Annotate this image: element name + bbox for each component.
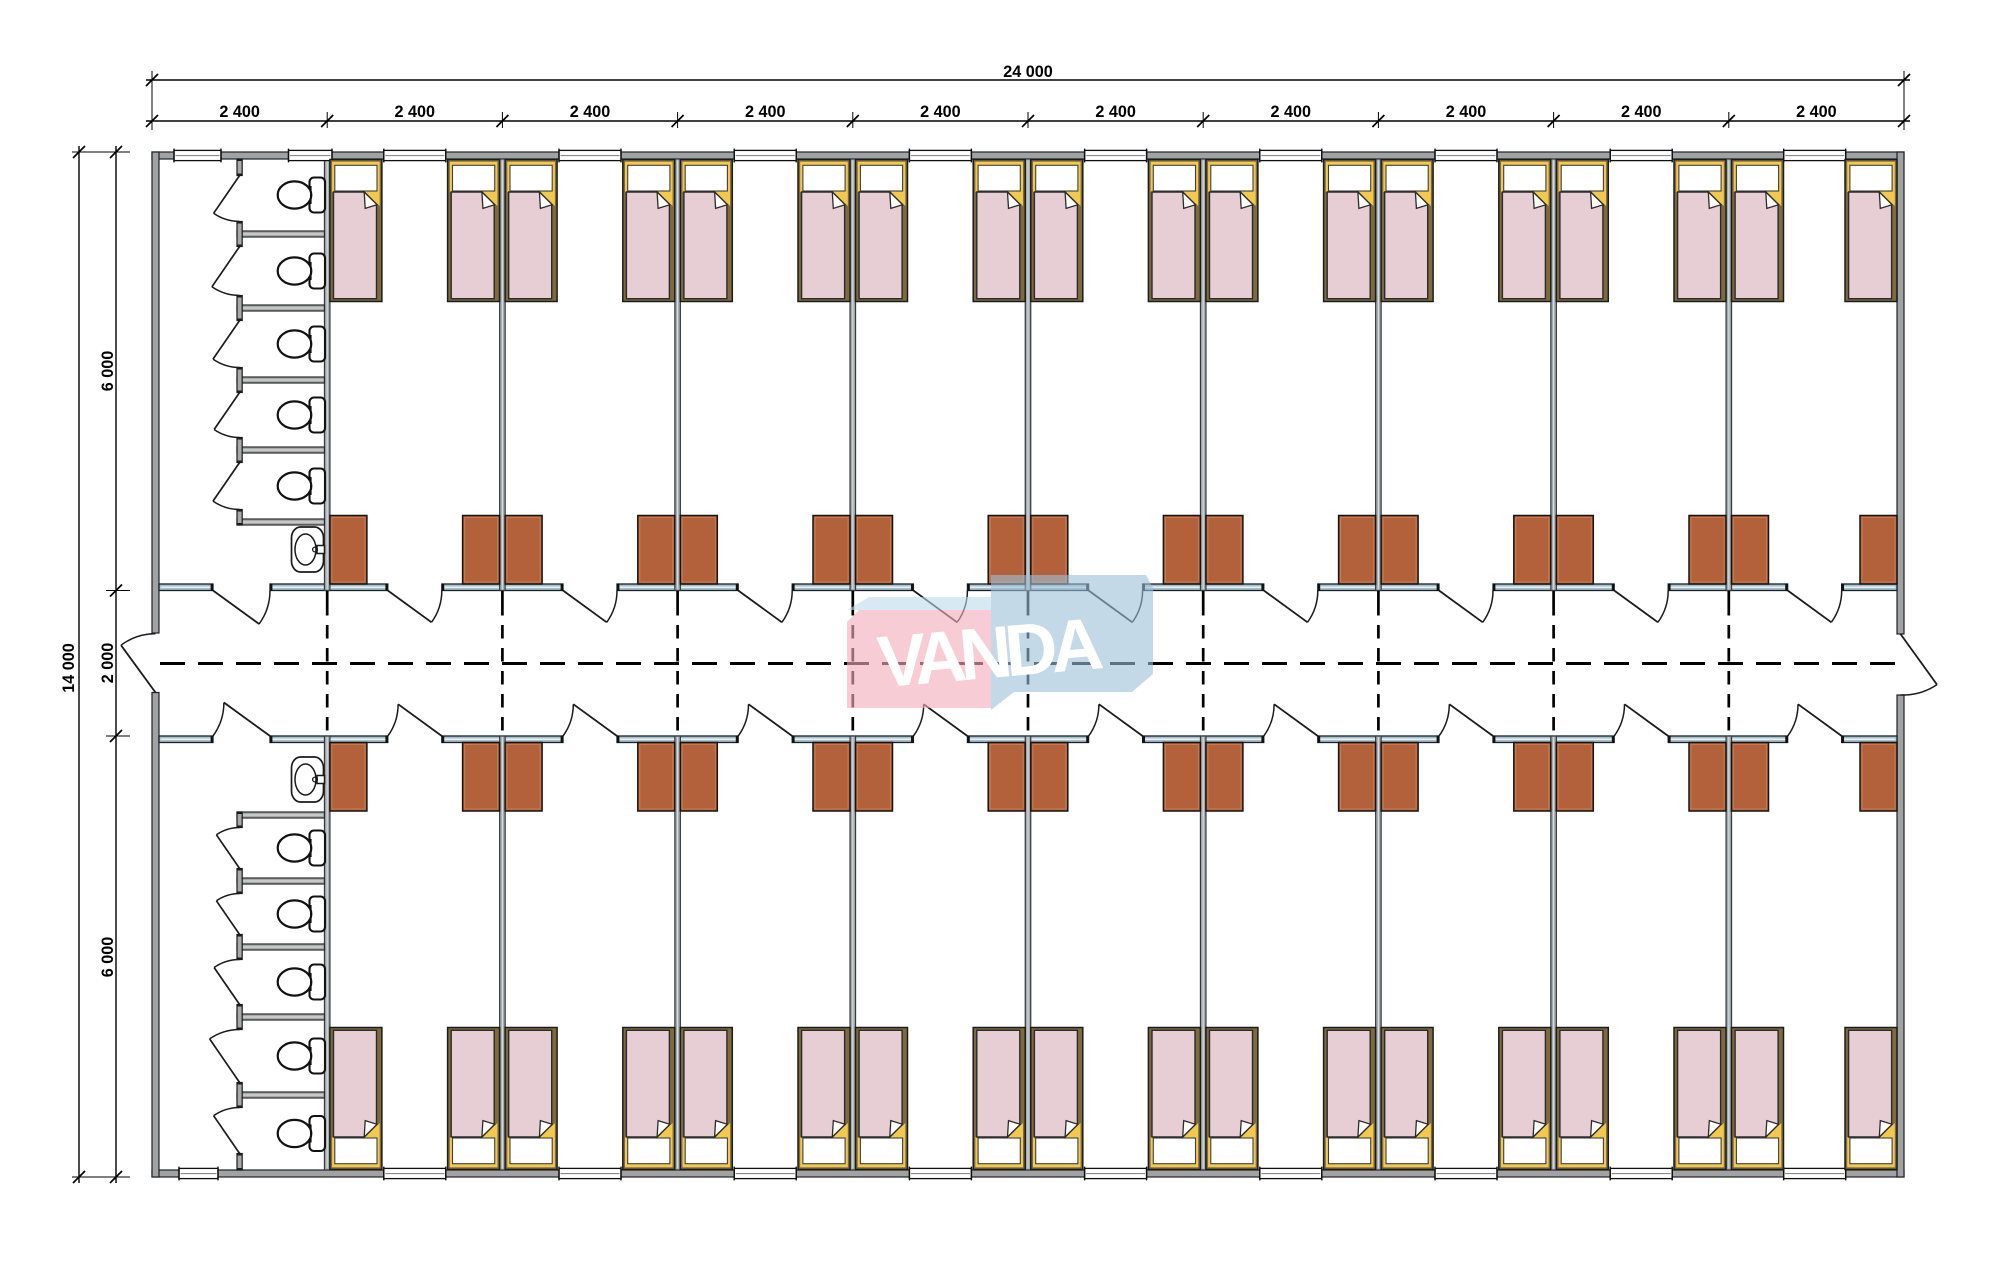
svg-text:2 400: 2 400 [570,103,611,121]
svg-text:2 000: 2 000 [99,643,117,684]
svg-text:6 000: 6 000 [99,351,117,392]
svg-text:14 000: 14 000 [60,643,78,693]
svg-text:2 400: 2 400 [1095,103,1136,121]
svg-text:2 400: 2 400 [745,103,786,121]
svg-text:2 400: 2 400 [1271,103,1312,121]
svg-text:2 400: 2 400 [395,103,436,121]
svg-text:2 400: 2 400 [1796,103,1837,121]
svg-text:24 000: 24 000 [1003,63,1053,81]
svg-text:6 000: 6 000 [99,937,117,978]
svg-text:2 400: 2 400 [1621,103,1662,121]
svg-text:2 400: 2 400 [1446,103,1487,121]
svg-text:2 400: 2 400 [219,103,260,121]
svg-text:2 400: 2 400 [920,103,961,121]
